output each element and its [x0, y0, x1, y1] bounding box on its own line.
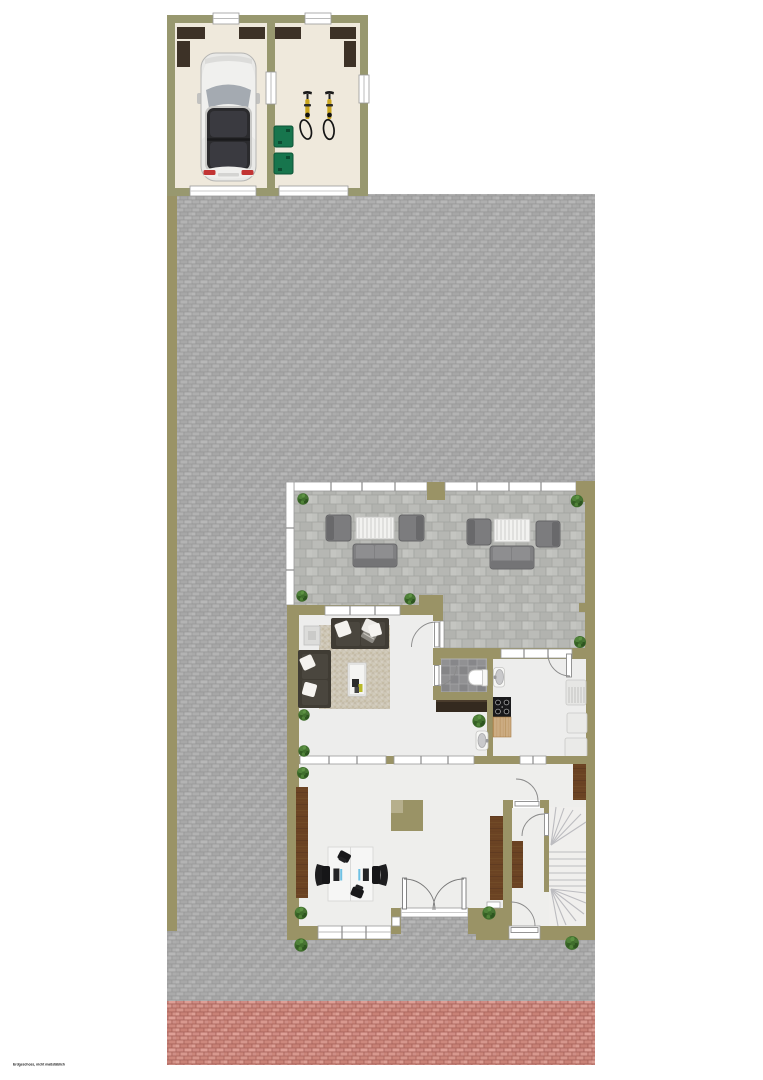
svg-text:Erdgeschoss, nicht maßstäblich: Erdgeschoss, nicht maßstäblich: [13, 1063, 65, 1067]
